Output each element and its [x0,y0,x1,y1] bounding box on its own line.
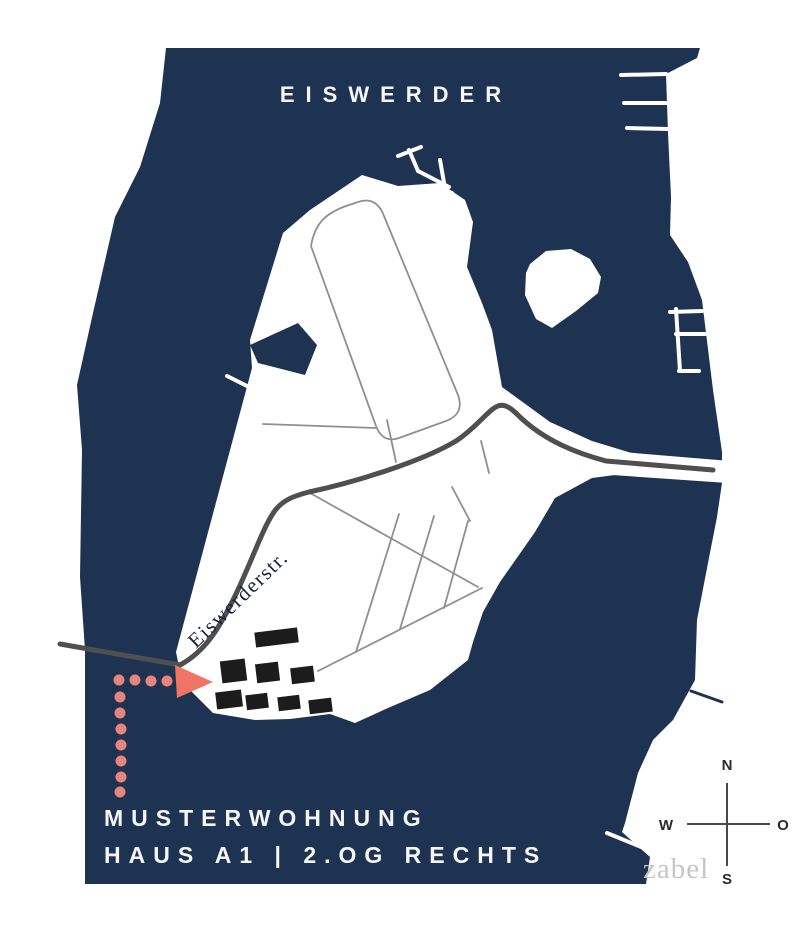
map-canvas: EISWERDER [0,0,800,934]
compass-south-label: S [722,871,732,888]
caption-line-1: MUSTERWOHNUNG [104,805,429,831]
map-title: EISWERDER [280,82,512,107]
compass-west-label: W [659,817,674,834]
site-map: EISWERDER [0,0,800,934]
compass-north-label: N [722,757,733,774]
compass-east-label: O [777,817,789,834]
southeast-dark-pier-icon [691,691,722,702]
watermark-logo: zabel [643,853,709,885]
caption-line-2: HAUS A1 | 2.OG RECHTS [104,842,547,868]
